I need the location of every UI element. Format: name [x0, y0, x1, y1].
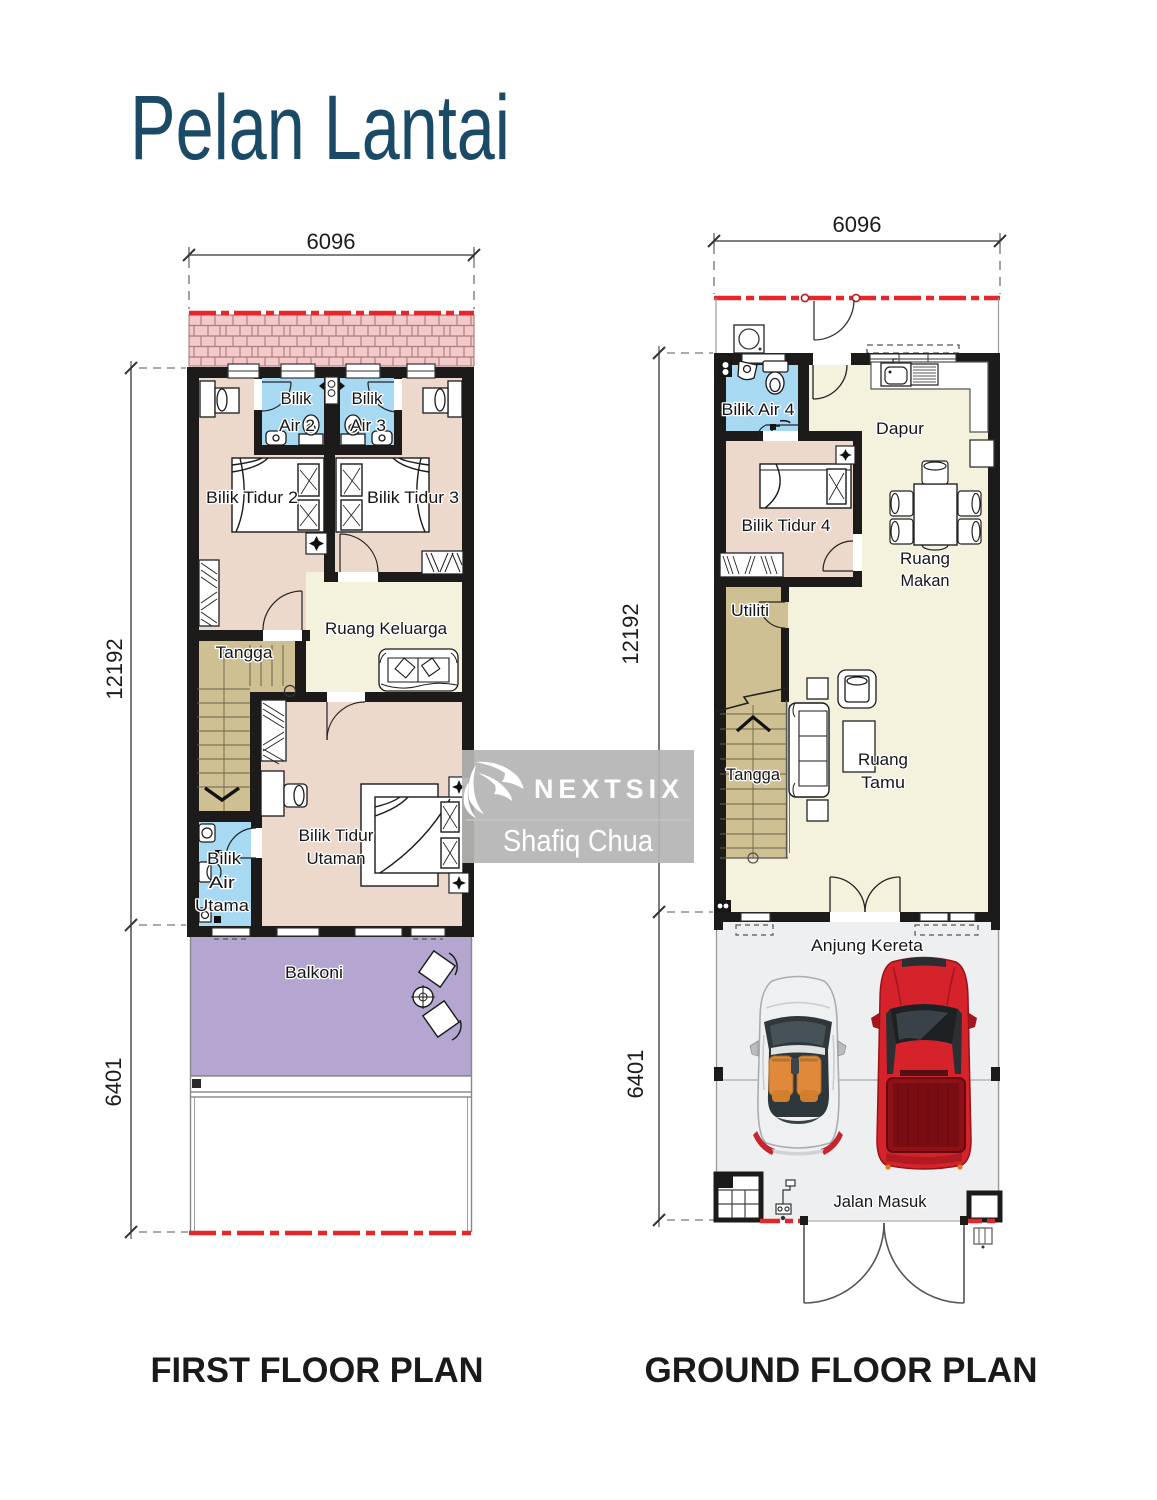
svg-text:NEXTSIX: NEXTSIX	[534, 774, 684, 804]
svg-text:Tangga: Tangga	[726, 765, 781, 784]
svg-text:Tangga: Tangga	[216, 643, 274, 662]
svg-text:Pelan Lantai: Pelan Lantai	[130, 77, 510, 179]
svg-text:6401: 6401	[623, 1050, 648, 1099]
svg-text:12192: 12192	[102, 638, 127, 699]
svg-text:Shafiq Chua: Shafiq Chua	[503, 823, 654, 858]
svg-text:6096: 6096	[833, 212, 882, 237]
svg-text:Bilik: Bilik	[281, 389, 312, 408]
svg-text:Ruang: Ruang	[900, 549, 950, 568]
svg-text:Dapur: Dapur	[876, 419, 924, 438]
svg-text:Air 3: Air 3	[350, 416, 386, 435]
svg-text:Utaman: Utaman	[307, 849, 366, 868]
svg-text:Air: Air	[209, 873, 235, 892]
svg-text:Bilik Tidur 3: Bilik Tidur 3	[367, 488, 459, 507]
svg-text:Bilik Tidur: Bilik Tidur	[299, 826, 374, 845]
svg-text:Bilik Tidur 4: Bilik Tidur 4	[742, 516, 831, 535]
svg-text:Balkoni: Balkoni	[285, 963, 343, 982]
svg-text:Anjung Kereta: Anjung Kereta	[811, 936, 924, 955]
svg-text:Tamu: Tamu	[861, 773, 905, 792]
svg-text:12192: 12192	[618, 603, 643, 664]
svg-text:Makan: Makan	[901, 571, 950, 590]
svg-text:GROUND FLOOR PLAN: GROUND FLOOR PLAN	[645, 1351, 1038, 1390]
svg-text:Ruang Keluarga: Ruang Keluarga	[325, 619, 448, 638]
svg-text:Air 2: Air 2	[279, 416, 315, 435]
svg-text:Utama: Utama	[195, 896, 250, 915]
svg-text:Bilik: Bilik	[352, 389, 383, 408]
svg-text:6096: 6096	[307, 229, 356, 254]
svg-text:Ruang: Ruang	[858, 750, 908, 769]
svg-text:Bilik: Bilik	[207, 849, 242, 868]
svg-text:Jalan Masuk: Jalan Masuk	[834, 1192, 927, 1211]
svg-text:Utiliti: Utiliti	[731, 601, 769, 620]
svg-text:Bilik Tidur 2: Bilik Tidur 2	[206, 488, 298, 507]
svg-text:6401: 6401	[101, 1058, 126, 1107]
svg-text:FIRST FLOOR PLAN: FIRST FLOOR PLAN	[151, 1351, 484, 1390]
svg-text:Bilik Air 4: Bilik Air 4	[722, 400, 795, 419]
